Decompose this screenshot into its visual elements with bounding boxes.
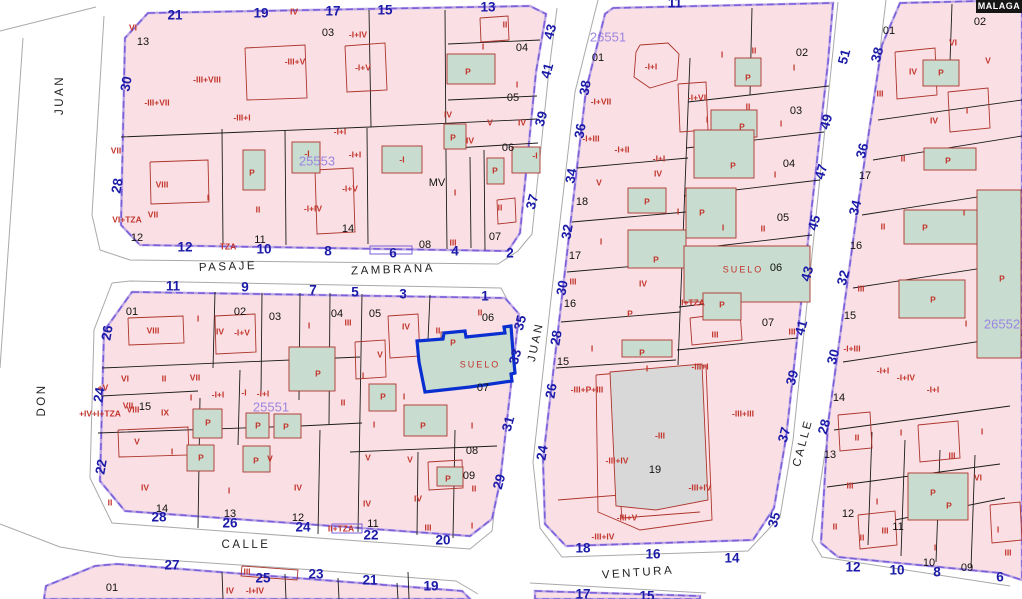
house-number: 3 xyxy=(399,287,407,302)
floor-label: I xyxy=(706,114,708,124)
parcel-number: 18 xyxy=(576,196,588,208)
house-number: 7 xyxy=(309,283,317,298)
parcel-number: 01 xyxy=(592,52,604,64)
floor-label: -I xyxy=(399,154,404,164)
floor-label: -I+I xyxy=(257,388,270,398)
floor-label: I xyxy=(190,392,192,402)
floor-label: VII xyxy=(148,209,158,219)
floor-label: I xyxy=(471,520,473,530)
floor-label: VII xyxy=(190,372,200,382)
floor-label: III xyxy=(449,237,456,247)
parcel-number: 01 xyxy=(883,25,895,37)
house-number: 19 xyxy=(253,6,268,21)
floor-label: IV xyxy=(444,109,452,119)
floor-label: II xyxy=(833,521,838,531)
parcel-number: 06 xyxy=(770,262,782,274)
floor-label: I xyxy=(591,343,593,353)
floor-label: I xyxy=(963,207,965,217)
house-number: 19 xyxy=(423,579,438,594)
floor-label: VI xyxy=(129,22,137,32)
parcel-number: 12 xyxy=(131,232,143,244)
parcel-number: 11 xyxy=(254,234,265,246)
floor-label: -I+I xyxy=(212,389,225,399)
house-number: 9 xyxy=(241,280,249,295)
floor-label: P xyxy=(450,132,456,142)
house-number: 5 xyxy=(351,285,359,300)
floor-label: II xyxy=(503,19,508,29)
floor-label: IV xyxy=(518,117,526,127)
house-number: 51 xyxy=(835,47,854,66)
floor-label: III xyxy=(569,276,576,286)
floor-label: III xyxy=(948,450,955,460)
parcel-number: 14 xyxy=(156,503,168,515)
house-number: 49 xyxy=(817,113,835,131)
parcel-number: 03 xyxy=(322,27,334,39)
house-number: 30 xyxy=(553,279,570,296)
floor-label: IV xyxy=(639,278,647,288)
house-number: 10 xyxy=(889,563,904,578)
floor-label: I xyxy=(403,391,405,401)
floor-label: -III+IV xyxy=(689,482,712,492)
parcel-number: 02 xyxy=(234,306,246,318)
floor-label: -I+I xyxy=(877,365,890,375)
parcel-number: MV xyxy=(429,177,446,189)
floor-label: -I+V xyxy=(342,183,358,193)
floor-label: III xyxy=(243,566,250,576)
street-name: CALLE xyxy=(222,539,271,551)
floor-label: -I+IV xyxy=(304,203,323,213)
floor-label: I+TZA xyxy=(681,297,705,307)
floor-label: P xyxy=(627,308,633,318)
house-number: 12 xyxy=(845,560,860,575)
cadastral-map-viewer: 2119171513434139372468101230281197531353… xyxy=(0,0,1022,599)
floor-label: P xyxy=(465,66,471,76)
parcel-number: 02 xyxy=(796,47,808,59)
parcel-number: 10 xyxy=(923,557,935,569)
house-number: 14 xyxy=(724,551,740,566)
floor-label: -III+III xyxy=(732,408,754,418)
parcel-number: 15 xyxy=(844,310,856,322)
floor-label: II xyxy=(881,221,886,231)
floor-label: I xyxy=(780,118,782,128)
floor-label: -I+IV xyxy=(349,29,368,39)
parcel-number: 07 xyxy=(762,317,774,329)
house-number: 12 xyxy=(177,240,192,255)
street-name: DON xyxy=(36,383,48,416)
house-number: 21 xyxy=(167,8,183,23)
floor-label: I xyxy=(934,542,936,552)
house-number: 45 xyxy=(805,213,824,232)
floor-label: P xyxy=(730,160,736,170)
floor-label: -III+VIII xyxy=(193,74,221,84)
floor-label: II xyxy=(761,223,766,233)
house-number: 6 xyxy=(389,246,397,261)
parcel-number: 03 xyxy=(790,105,802,117)
floor-label: III xyxy=(881,525,888,535)
house-number: 20 xyxy=(435,533,450,548)
house-number: 41 xyxy=(538,61,557,80)
floor-label: I xyxy=(454,187,456,197)
house-number: 37 xyxy=(775,426,793,444)
floor-label: VII xyxy=(111,145,121,155)
house-number: 8 xyxy=(324,244,332,259)
floor-label: V xyxy=(407,454,413,464)
floor-label: P xyxy=(945,155,951,165)
house-number: 32 xyxy=(558,223,575,240)
floor-label: -I+I xyxy=(927,384,940,394)
floor-label: I xyxy=(197,313,199,323)
floor-label: VIII xyxy=(147,325,160,335)
floor-label: III xyxy=(1004,547,1011,557)
floor-label: I xyxy=(228,485,230,495)
street-name: JUAN xyxy=(54,75,66,115)
parcel-number: 08 xyxy=(419,239,431,251)
floor-label: V xyxy=(365,452,371,462)
floor-label: I xyxy=(793,62,795,72)
parcel-number: 14 xyxy=(342,223,354,235)
house-number: 17 xyxy=(325,4,340,19)
floor-label: IV xyxy=(363,498,371,508)
floor-label: I xyxy=(516,79,518,89)
street-name: ZAMBRANA xyxy=(351,263,435,278)
floor-label: I xyxy=(482,41,484,51)
floor-label: II xyxy=(752,45,757,55)
house-number: 34 xyxy=(562,167,579,185)
house-number: 15 xyxy=(639,589,655,599)
floor-label: P xyxy=(922,222,928,232)
parcel-number: 15 xyxy=(139,401,151,413)
floor-label: P xyxy=(719,299,725,309)
floor-label: II xyxy=(162,373,167,383)
floor-label: P xyxy=(445,473,451,483)
parcel-number: 15 xyxy=(557,356,569,368)
floor-label: -I+I xyxy=(349,149,362,159)
house-number: 43 xyxy=(798,264,817,283)
house-number: 13 xyxy=(480,0,496,15)
floor-label: V xyxy=(487,117,493,127)
floor-label: P xyxy=(249,167,255,177)
floor-label: IV xyxy=(466,135,474,145)
floor-label: VIII xyxy=(127,404,140,414)
floor-label: V xyxy=(267,453,273,463)
street-curb-line xyxy=(0,38,23,368)
patio-parcel[interactable] xyxy=(289,347,335,391)
parcel-number: 04 xyxy=(516,42,528,54)
floor-label: I xyxy=(721,49,723,59)
house-number: 2 xyxy=(506,246,514,261)
floor-label: IV xyxy=(402,321,410,331)
floor-label: P xyxy=(644,196,650,206)
floor-label: -I+IV xyxy=(246,585,265,595)
floor-label: II xyxy=(436,325,441,335)
floor-label: I xyxy=(646,363,648,373)
suelo-label: SUELO xyxy=(723,264,764,274)
floor-label: -I+V xyxy=(234,327,250,337)
floor-label: III xyxy=(424,522,431,532)
house-number: 18 xyxy=(575,541,591,556)
floor-label: P xyxy=(699,207,705,217)
block-id: 25551 xyxy=(253,399,289,414)
patio-parcel[interactable] xyxy=(908,473,968,520)
floor-label: IV xyxy=(930,115,938,125)
street-name: VENTURA xyxy=(601,565,674,582)
floor-label: -III+V xyxy=(285,56,306,66)
parcel-number: 13 xyxy=(824,449,836,461)
parcel-number: 06 xyxy=(482,312,494,324)
floor-label: P xyxy=(315,368,321,378)
house-number: 11 xyxy=(668,0,683,11)
parcel-number: 04 xyxy=(783,158,795,170)
parcel-number: 17 xyxy=(569,250,581,262)
floor-label: -I+VI xyxy=(688,92,706,102)
parcel-number: 06 xyxy=(502,142,514,154)
floor-label: P xyxy=(639,347,645,357)
floor-label: II xyxy=(472,483,477,493)
parcel-number: 17 xyxy=(859,170,871,182)
street-name: PASAJE xyxy=(199,260,258,274)
house-number: 47 xyxy=(812,163,830,181)
floor-label: P xyxy=(930,487,936,497)
floor-label: P xyxy=(492,165,498,175)
floor-label: II xyxy=(855,432,860,442)
parcel-number: 11 xyxy=(892,521,903,533)
parcel-number: 05 xyxy=(369,308,381,320)
floor-label: II xyxy=(341,397,346,407)
floor-label: P xyxy=(739,121,745,131)
parcel-number: 01 xyxy=(106,582,118,594)
floor-label: IV xyxy=(216,326,224,336)
block-id: 25553 xyxy=(299,153,335,168)
house-number: 6 xyxy=(996,570,1004,585)
parcel-number: 07 xyxy=(477,382,489,394)
floor-label: P xyxy=(450,337,456,347)
floor-label: IV xyxy=(909,66,917,76)
floor-label: -I+I xyxy=(645,61,658,71)
house-number: 38 xyxy=(576,79,593,97)
floor-label: -I+III xyxy=(843,343,860,353)
parcel-number: 05 xyxy=(777,212,789,224)
floor-label: -I+II xyxy=(615,144,630,154)
floor-label: I xyxy=(471,420,473,430)
floor-label: III xyxy=(344,317,351,327)
parcel-number: 08 xyxy=(466,445,478,457)
patio-parcel[interactable] xyxy=(622,340,672,357)
floor-label: VI+TZA xyxy=(112,214,142,224)
floor-label: -I+I xyxy=(334,126,347,136)
floor-label: P xyxy=(198,452,204,462)
floor-label: -I+V xyxy=(355,62,371,72)
floor-label: I xyxy=(900,427,902,437)
patio-parcel[interactable] xyxy=(904,210,978,244)
floor-label: IV xyxy=(654,168,662,178)
house-number: 17 xyxy=(575,587,590,599)
parcel-number: 05 xyxy=(507,92,519,104)
floor-label: VI xyxy=(974,472,982,482)
floor-label: V xyxy=(985,55,991,65)
house-number: 35 xyxy=(511,313,530,332)
house-number: 23 xyxy=(308,567,324,582)
floor-label: II xyxy=(860,532,865,542)
floor-label: IV xyxy=(226,585,234,595)
parcel-number: 14 xyxy=(833,392,845,404)
floor-label: I xyxy=(171,446,173,456)
floor-label: -III+IV xyxy=(606,455,629,465)
floor-label: P xyxy=(420,420,426,430)
house-number: 30 xyxy=(117,75,134,92)
floor-label: I xyxy=(774,169,776,179)
floor-label: II xyxy=(901,153,906,163)
floor-label: -I+I xyxy=(653,153,666,163)
floor-label: V xyxy=(596,177,602,187)
parcel-number: 09 xyxy=(463,470,475,482)
house-number: 21 xyxy=(362,573,378,588)
patio-parcel[interactable] xyxy=(447,54,495,84)
house-number: 33 xyxy=(506,347,525,366)
house-number: 29 xyxy=(490,473,508,491)
house-number: 1 xyxy=(481,289,489,304)
floor-label: I xyxy=(966,105,968,115)
parcel-number: 07 xyxy=(489,231,501,243)
floor-label: IX xyxy=(161,407,169,417)
parcel-number: 13 xyxy=(224,508,236,520)
parcel-number: 09 xyxy=(961,562,973,574)
floor-label: TZA xyxy=(220,241,237,251)
floor-label: P xyxy=(653,254,659,264)
floor-label: -I+III xyxy=(582,133,599,143)
floor-label: II+TZA xyxy=(328,523,354,533)
parcel-number: 16 xyxy=(850,240,862,252)
floor-label: P xyxy=(380,391,386,401)
parcel-number: 12 xyxy=(292,512,304,524)
floor-label: II xyxy=(478,307,483,317)
floor-label: -I+IV xyxy=(897,372,916,382)
house-number: 37 xyxy=(523,193,541,211)
parcel-number: 11 xyxy=(367,518,378,530)
parcel-number: 16 xyxy=(564,298,576,310)
parcel-number: 02 xyxy=(974,16,986,28)
house-number: 28 xyxy=(108,177,125,195)
floor-label: P xyxy=(745,72,751,82)
house-number: 31 xyxy=(499,414,518,433)
patio-parcel[interactable] xyxy=(694,130,754,178)
floor-label: P xyxy=(946,500,952,510)
parcel-number: 12 xyxy=(842,508,854,520)
cadastral-map[interactable]: 2119171513434139372468101230281197531353… xyxy=(0,0,1022,599)
floor-label: -I+VII xyxy=(591,96,612,106)
floor-label: I xyxy=(722,222,724,232)
floor-label: I xyxy=(997,524,999,534)
street-curb-line xyxy=(0,7,96,31)
floor-label: P xyxy=(205,417,211,427)
floor-label: IV xyxy=(294,482,302,492)
floor-label: II xyxy=(746,101,751,111)
floor-label: V xyxy=(134,436,140,446)
floor-label: II xyxy=(256,204,261,214)
parcel-number: 01 xyxy=(126,306,138,318)
house-number: 39 xyxy=(532,110,550,128)
floor-label: -I xyxy=(241,387,246,397)
floor-label: -III+I xyxy=(691,361,708,371)
suelo-label: SUELO xyxy=(460,359,501,369)
floor-label: II xyxy=(498,202,503,212)
floor-label: I xyxy=(308,320,310,330)
floor-label: III xyxy=(857,283,864,293)
floor-label: I xyxy=(207,192,209,202)
parcel-number: 13 xyxy=(137,36,149,48)
street-name: JUAN xyxy=(526,321,546,363)
floor-label: P xyxy=(999,273,1005,283)
house-number: 24 xyxy=(533,444,550,462)
block-id: 26552 xyxy=(984,316,1020,331)
floor-label: I xyxy=(981,426,983,436)
floor-label: IV xyxy=(414,493,422,503)
patio-parcel[interactable] xyxy=(686,188,736,238)
floor-label: P xyxy=(283,421,289,431)
house-number: 25 xyxy=(255,571,271,586)
floor-label: III xyxy=(711,329,718,339)
floor-label: P xyxy=(938,67,944,77)
floor-label: I xyxy=(677,206,679,216)
floor-label: -III+V xyxy=(617,512,638,522)
house-number: 43 xyxy=(541,22,560,41)
city-badge: MALAGA xyxy=(976,0,1022,13)
floor-label: IV xyxy=(290,6,298,16)
house-number: 22 xyxy=(92,458,109,475)
floor-label: -III xyxy=(655,430,665,440)
floor-label: P xyxy=(253,455,259,465)
floor-label: III xyxy=(788,326,795,336)
floor-label: V xyxy=(377,349,383,359)
house-number: 11 xyxy=(166,279,181,294)
parcel-number: 03 xyxy=(269,311,281,323)
floor-label: III xyxy=(846,480,853,490)
floor-label: VI xyxy=(121,373,129,383)
house-number: 28 xyxy=(547,329,564,347)
floor-label: I xyxy=(362,370,364,380)
floor-label: -III+VII xyxy=(144,97,169,107)
floor-label: I xyxy=(965,318,967,328)
floor-label: I xyxy=(373,419,375,429)
floor-label: I xyxy=(600,236,602,246)
house-number: 27 xyxy=(164,558,179,573)
floor-label: III xyxy=(876,88,883,98)
block-id: 26551 xyxy=(590,29,626,44)
floor-label: VIII xyxy=(156,179,169,189)
floor-label: +IV+I+TZA xyxy=(79,408,121,418)
floor-label: +V xyxy=(98,382,109,392)
floor-label: P xyxy=(930,294,936,304)
floor-label: -III+I xyxy=(233,112,250,122)
floor-label: P xyxy=(255,420,261,430)
house-number: 16 xyxy=(645,547,661,562)
floor-label: II xyxy=(108,497,113,507)
floor-label: -III+IV xyxy=(592,531,615,541)
floor-label: I xyxy=(876,496,878,506)
house-number: 15 xyxy=(377,3,393,18)
floor-label: VI xyxy=(949,37,957,47)
house-number: 26 xyxy=(542,382,559,400)
parcel-number: 19 xyxy=(649,464,661,476)
floor-label: IV xyxy=(141,482,149,492)
house-number: 26 xyxy=(98,324,115,342)
floor-label: -I xyxy=(532,150,537,160)
floor-label: -III+P+III xyxy=(571,384,604,394)
parcel-number: 04 xyxy=(331,308,343,320)
